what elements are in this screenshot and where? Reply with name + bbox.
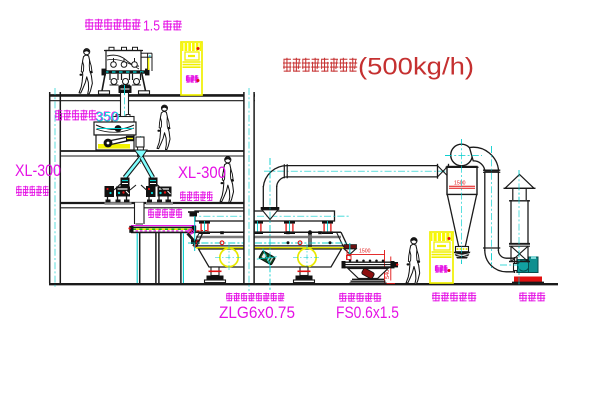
svg-text:FS0.6x1.5: FS0.6x1.5 — [336, 304, 399, 322]
svg-text:350: 350 — [96, 108, 120, 124]
svg-text:(500kg/h): (500kg/h) — [358, 54, 474, 81]
svg-text:1500: 1500 — [454, 181, 466, 187]
svg-text:XL-300: XL-300 — [15, 162, 61, 180]
svg-text:1.5: 1.5 — [143, 19, 160, 35]
svg-text:ZLG6x0.75: ZLG6x0.75 — [219, 304, 295, 322]
svg-text:XL-300: XL-300 — [178, 164, 226, 182]
svg-text:1500: 1500 — [359, 249, 371, 255]
